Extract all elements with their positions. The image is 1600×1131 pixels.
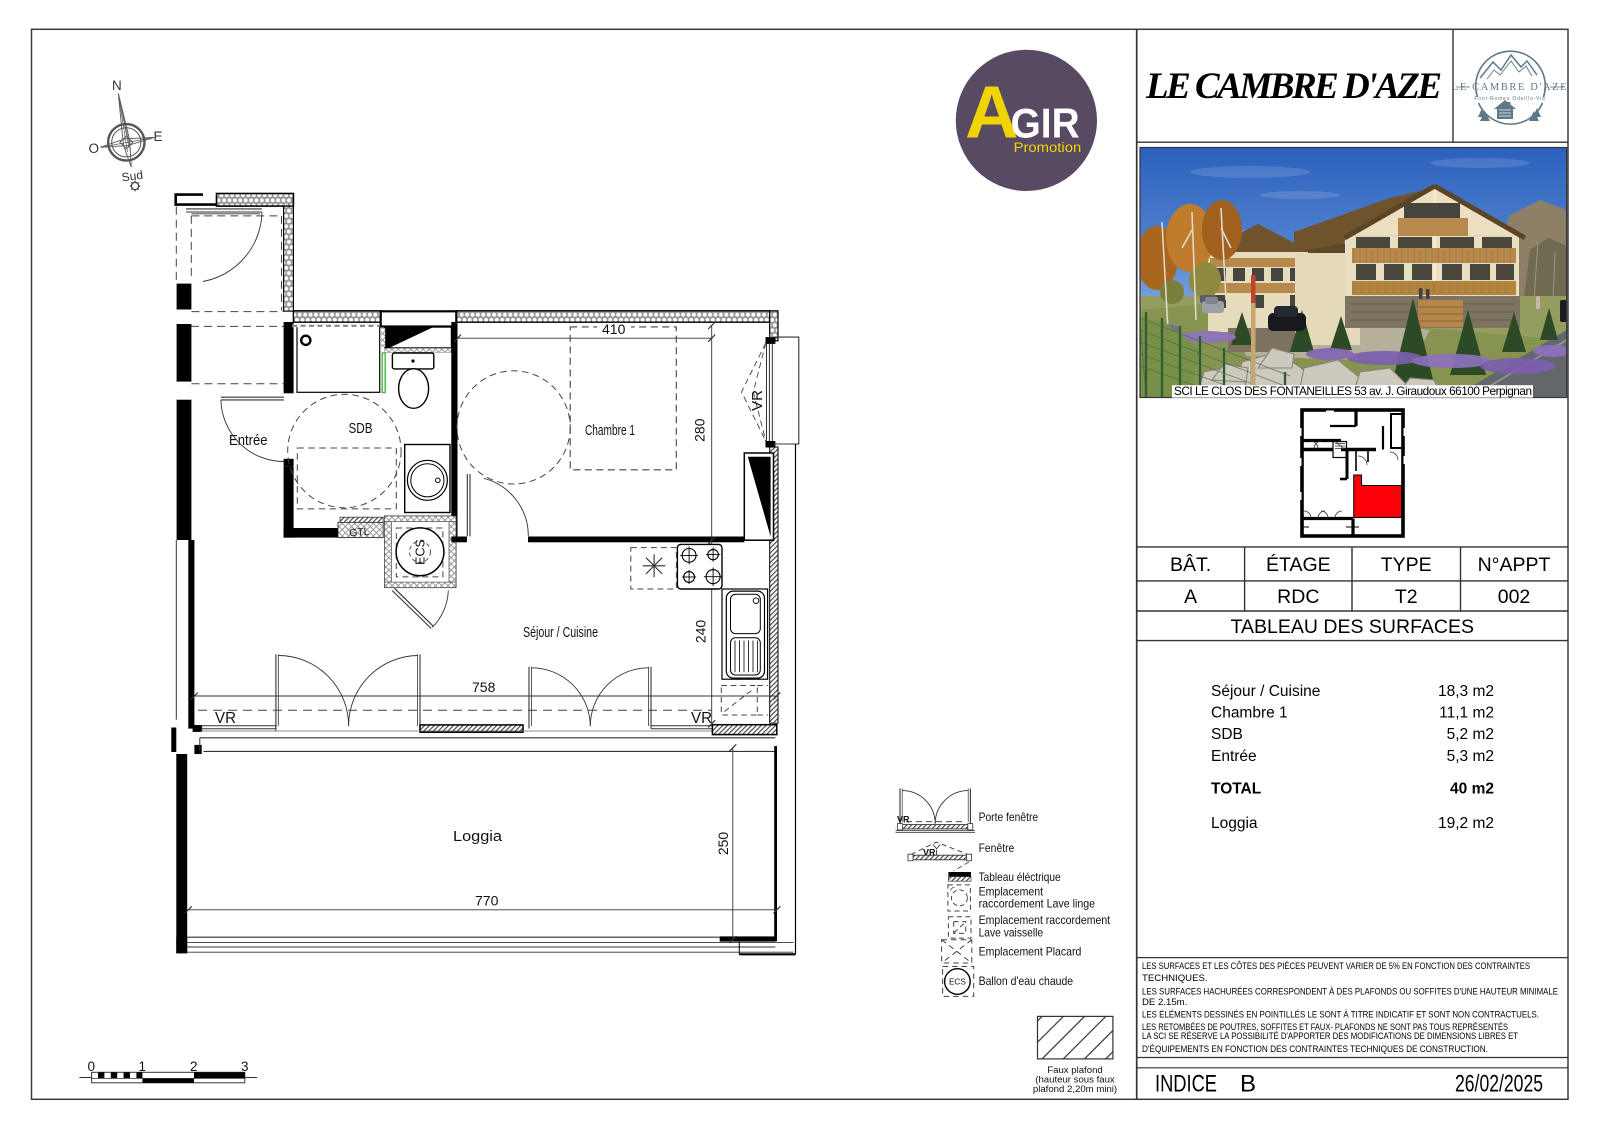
svg-text:LES SURFACES ET LES CÔTES DES: LES SURFACES ET LES CÔTES DES PIÈCES PEU… <box>1142 961 1530 972</box>
svg-text:410: 410 <box>602 321 626 337</box>
svg-text:Emplacement Placard: Emplacement Placard <box>979 945 1082 959</box>
svg-text:RDC: RDC <box>1277 586 1319 608</box>
svg-text:ÉTAGE: ÉTAGE <box>1266 553 1331 576</box>
svg-text:TABLEAU DES SURFACES: TABLEAU DES SURFACES <box>1231 616 1474 638</box>
svg-text:Porte fenêtre: Porte fenêtre <box>979 810 1039 824</box>
svg-text:LES ÉLÉMENTS DESSINÉS EN POINT: LES ÉLÉMENTS DESSINÉS EN POINTILLÉS LE S… <box>1142 1010 1539 1021</box>
svg-text:5,3 m2: 5,3 m2 <box>1447 748 1494 765</box>
svg-text:LES SURFACES HACHURÉES CORRESP: LES SURFACES HACHURÉES CORRESPONDENT À D… <box>1142 987 1558 998</box>
svg-text:0: 0 <box>88 1059 96 1074</box>
svg-text:Ballon d'eau chaude: Ballon d'eau chaude <box>979 974 1074 988</box>
svg-text:Lave vaisselle: Lave vaisselle <box>979 926 1044 940</box>
svg-text:N: N <box>112 78 122 93</box>
svg-text:GTL: GTL <box>349 526 370 539</box>
svg-text:O: O <box>89 141 100 156</box>
svg-text:BÂT.: BÂT. <box>1170 553 1211 576</box>
svg-text:VR: VR <box>923 848 936 858</box>
svg-text:Séjour / Cuisine: Séjour / Cuisine <box>1211 683 1320 700</box>
svg-text:40 m2: 40 m2 <box>1450 781 1494 798</box>
svg-text:Chambre 1: Chambre 1 <box>585 422 635 439</box>
svg-text:SDB: SDB <box>1211 726 1243 743</box>
svg-text:VR: VR <box>691 710 712 727</box>
svg-text:19,2 m2: 19,2 m2 <box>1438 815 1494 832</box>
svg-text:Entrée: Entrée <box>1211 748 1257 765</box>
svg-text:VR: VR <box>897 815 910 825</box>
svg-text:Loggia: Loggia <box>453 828 503 845</box>
svg-text:Font-Romeu Odeillo-Via: Font-Romeu Odeillo-Via <box>1474 96 1545 102</box>
svg-text:Entrée: Entrée <box>229 432 268 449</box>
svg-text:280: 280 <box>692 418 708 442</box>
svg-text:INDICE: INDICE <box>1155 1071 1217 1098</box>
svg-text:T2: T2 <box>1395 586 1418 608</box>
svg-text:2: 2 <box>190 1059 198 1074</box>
svg-text:Promotion: Promotion <box>1014 140 1082 155</box>
svg-text:SDB: SDB <box>349 420 373 437</box>
svg-text:A: A <box>1184 586 1197 608</box>
svg-text:Sud: Sud <box>121 168 144 185</box>
svg-text:N°APPT: N°APPT <box>1478 554 1551 576</box>
svg-text:250: 250 <box>715 832 731 856</box>
svg-text:Séjour / Cuisine: Séjour / Cuisine <box>523 624 598 641</box>
svg-text:Loggia: Loggia <box>1211 815 1258 832</box>
svg-text:26/02/2025: 26/02/2025 <box>1455 1071 1543 1098</box>
svg-text:plafond 2,20m mini): plafond 2,20m mini) <box>1033 1084 1117 1095</box>
svg-text:002: 002 <box>1498 586 1531 608</box>
svg-text:SCI LE CLOS DES FONTANEILLES 5: SCI LE CLOS DES FONTANEILLES 53 av. J. G… <box>1174 384 1532 398</box>
svg-text:Fenêtre: Fenêtre <box>979 841 1015 855</box>
svg-text:ECS: ECS <box>414 539 428 565</box>
svg-text:18,3 m2: 18,3 m2 <box>1438 683 1494 700</box>
svg-text:LE CAMBRE D'AZE: LE CAMBRE D'AZE <box>1145 66 1443 107</box>
svg-text:758: 758 <box>472 679 496 695</box>
svg-text:VR: VR <box>749 390 766 411</box>
svg-text:B: B <box>1240 1071 1256 1098</box>
svg-text:raccordement Lave linge: raccordement Lave linge <box>979 897 1096 911</box>
svg-text:DE 2.15m.: DE 2.15m. <box>1142 997 1187 1008</box>
svg-text:D'ÉQUIPEMENTS EN FONCTION DES: D'ÉQUIPEMENTS EN FONCTION DES CONTRAINTE… <box>1142 1044 1488 1055</box>
svg-text:VR: VR <box>215 710 236 727</box>
svg-text:770: 770 <box>475 893 499 909</box>
svg-text:LA SCI SE RÉSERVE LA POSSIBILI: LA SCI SE RÉSERVE LA POSSIBILITÉ D'APPOR… <box>1142 1031 1518 1042</box>
svg-text:11,1 m2: 11,1 m2 <box>1439 705 1494 722</box>
svg-text:5,2 m2: 5,2 m2 <box>1447 726 1494 743</box>
svg-text:E: E <box>154 129 163 144</box>
svg-text:TECHNIQUES.: TECHNIQUES. <box>1142 973 1208 984</box>
svg-text:Chambre 1: Chambre 1 <box>1211 705 1288 722</box>
svg-text:TYPE: TYPE <box>1381 554 1432 576</box>
svg-text:3: 3 <box>241 1059 249 1074</box>
svg-text:TOTAL: TOTAL <box>1211 781 1261 798</box>
svg-text:LE CAMBRE D'AZE: LE CAMBRE D'AZE <box>1452 82 1568 93</box>
svg-text:1: 1 <box>139 1059 147 1074</box>
svg-text:240: 240 <box>693 620 709 644</box>
svg-text:ECS: ECS <box>949 978 966 987</box>
svg-text:Tableau éléctrique: Tableau éléctrique <box>979 870 1061 884</box>
